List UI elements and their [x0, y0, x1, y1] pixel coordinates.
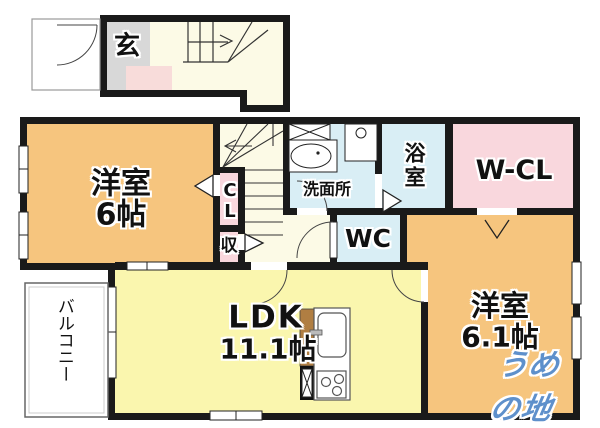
label-wc: WC [345, 226, 391, 252]
label-closet-shu: 収 [221, 238, 238, 256]
label-genkan: 玄 [114, 33, 140, 60]
label-ldk-size: 11.1帖 [219, 334, 316, 363]
label-ldk: LDK [228, 302, 304, 335]
label-washroom: 洗面所 [303, 182, 351, 199]
wc-door-leaf [330, 222, 337, 258]
label-closet-cl: CL [220, 180, 239, 222]
entrance-stair-block [100, 15, 290, 112]
label-balcony: バルコニー [54, 298, 72, 383]
floorplan: 玄 洋室 6帖 CL 収 洗面所 浴室 W-CL WC LDK 11.1帖 洋室… [0, 0, 600, 428]
label-bedroom-west-size: 6帖 [96, 199, 147, 231]
label-wcl: W-CL [476, 157, 553, 185]
label-bedroom-east: 洋室 [471, 291, 529, 321]
label-bathroom: 浴室 [403, 142, 425, 190]
label-bedroom-west: 洋室 [91, 168, 151, 200]
entrance-mat [126, 66, 172, 90]
porch [32, 19, 100, 90]
